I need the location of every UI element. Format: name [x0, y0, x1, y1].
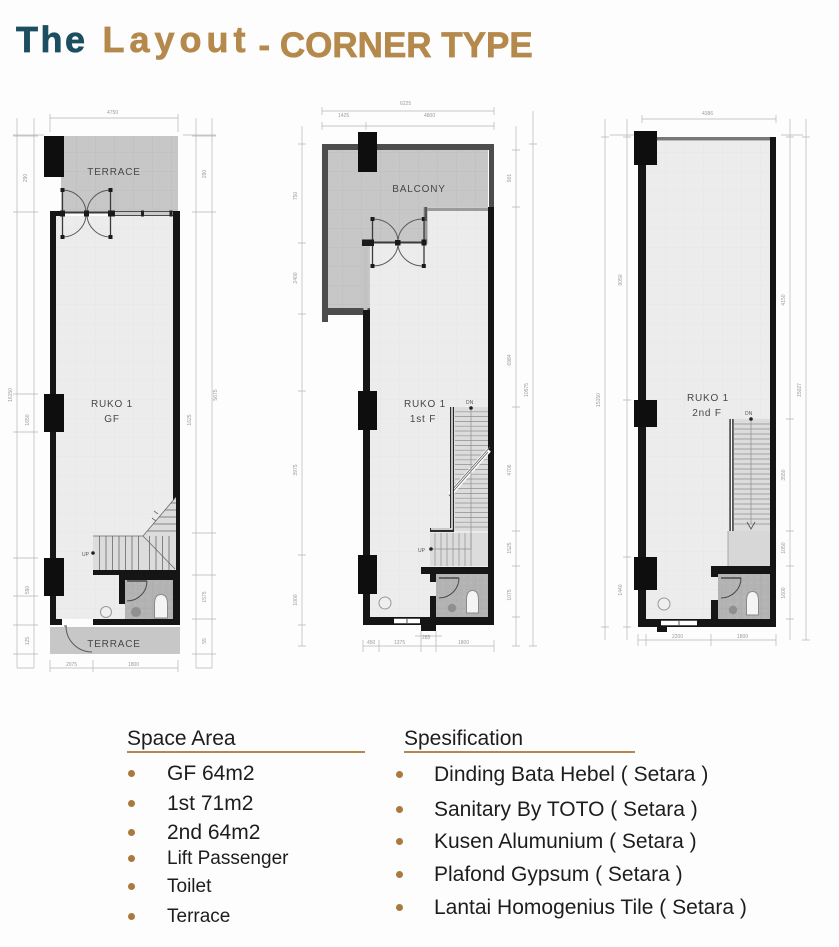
svg-text:1800: 1800 — [128, 662, 139, 668]
svg-text:1600: 1600 — [781, 587, 787, 598]
svg-text:15150: 15150 — [596, 393, 602, 407]
svg-text:1000: 1000 — [293, 594, 299, 605]
svg-text:1425: 1425 — [338, 113, 349, 119]
svg-text:55: 55 — [202, 638, 208, 644]
svg-text:2075: 2075 — [66, 662, 77, 668]
svg-text:6225: 6225 — [400, 101, 411, 107]
svg-text:1075: 1075 — [507, 589, 513, 600]
svg-text:16150: 16150 — [8, 388, 14, 402]
svg-text:4150: 4150 — [781, 294, 787, 305]
svg-text:RUKO 1: RUKO 1 — [404, 399, 446, 410]
svg-text:1625: 1625 — [187, 414, 193, 425]
svg-text:2400: 2400 — [293, 272, 299, 283]
svg-text:290: 290 — [202, 170, 208, 179]
svg-text:1650: 1650 — [25, 414, 31, 425]
svg-text:15027: 15027 — [797, 383, 803, 397]
svg-text:901: 901 — [507, 174, 513, 183]
svg-text:1800: 1800 — [458, 640, 469, 646]
svg-text:2200: 2200 — [672, 634, 683, 640]
svg-text:TERRACE: TERRACE — [87, 639, 140, 650]
svg-text:750: 750 — [293, 192, 299, 201]
svg-text:4706: 4706 — [507, 464, 513, 475]
svg-text:UP: UP — [418, 548, 426, 554]
svg-text:1050: 1050 — [781, 542, 787, 553]
svg-text:3550: 3550 — [781, 469, 787, 480]
svg-text:4800: 4800 — [424, 113, 435, 119]
svg-text:450: 450 — [367, 640, 376, 646]
svg-text:1575: 1575 — [202, 591, 208, 602]
svg-text:1st F: 1st F — [410, 414, 436, 425]
svg-text:1440: 1440 — [618, 584, 624, 595]
svg-text:3975: 3975 — [293, 464, 299, 475]
svg-text:590: 590 — [25, 586, 31, 595]
svg-text:DN: DN — [745, 411, 753, 417]
svg-text:9050: 9050 — [618, 274, 624, 285]
svg-text:4386: 4386 — [702, 111, 713, 117]
svg-text:290: 290 — [23, 174, 29, 183]
svg-text:4750: 4750 — [107, 110, 118, 116]
svg-text:UP: UP — [82, 552, 90, 558]
svg-text:5675: 5675 — [213, 389, 219, 400]
svg-text:DN: DN — [466, 400, 474, 406]
svg-text:1375: 1375 — [394, 640, 405, 646]
svg-text:1800: 1800 — [737, 634, 748, 640]
svg-text:6984: 6984 — [507, 354, 513, 365]
svg-text:285: 285 — [422, 635, 431, 641]
svg-text:10575: 10575 — [524, 383, 530, 397]
svg-text:BALCONY: BALCONY — [392, 184, 445, 195]
svg-text:125: 125 — [25, 637, 31, 646]
svg-text:1525: 1525 — [507, 542, 513, 553]
svg-text:2nd F: 2nd F — [692, 408, 722, 419]
svg-text:RUKO 1: RUKO 1 — [687, 393, 729, 404]
svg-text:TERRACE: TERRACE — [87, 167, 140, 178]
svg-text:RUKO 1: RUKO 1 — [91, 399, 133, 410]
svg-text:GF: GF — [104, 414, 120, 425]
